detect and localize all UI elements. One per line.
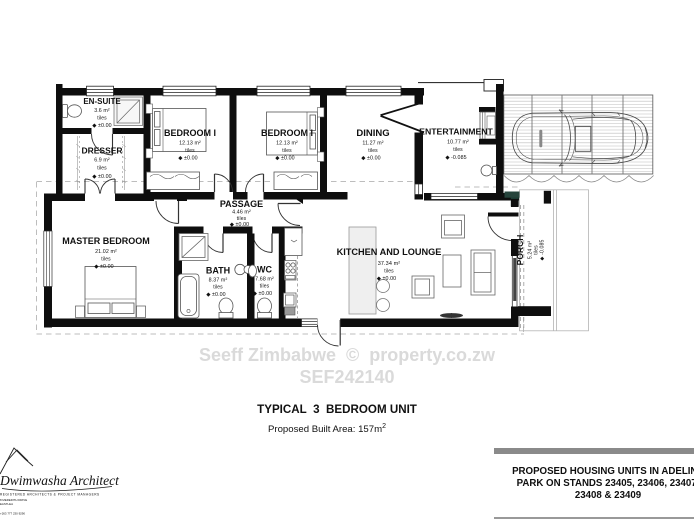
svg-text:BEDROOM I: BEDROOM I xyxy=(261,128,313,138)
svg-text:tiles: tiles xyxy=(97,116,107,122)
svg-text:◆ -0.085: ◆ -0.085 xyxy=(445,155,466,161)
svg-text:10.77 m²: 10.77 m² xyxy=(447,140,469,146)
svg-text:tiles: tiles xyxy=(260,284,270,290)
svg-text:12.13 m²: 12.13 m² xyxy=(179,141,201,147)
svg-text:EN-SUITE: EN-SUITE xyxy=(83,97,121,106)
svg-text:tiles: tiles xyxy=(453,147,463,153)
svg-text:◆ ±0.00: ◆ ±0.00 xyxy=(94,264,113,270)
svg-text:DINING: DINING xyxy=(356,128,389,139)
svg-text:tiles: tiles xyxy=(101,257,111,263)
svg-text:11.27 m²: 11.27 m² xyxy=(362,141,383,147)
svg-text:7.68 m²: 7.68 m² xyxy=(255,277,274,283)
svg-text:WC: WC xyxy=(257,265,272,275)
svg-text:◆ ±0.00: ◆ ±0.00 xyxy=(361,156,380,162)
svg-text:◆ ±0.00: ◆ ±0.00 xyxy=(178,156,197,162)
svg-text:tiles: tiles xyxy=(384,269,394,275)
svg-text:8.37 m²: 8.37 m² xyxy=(209,278,228,284)
svg-text:◆ ±0.00: ◆ ±0.00 xyxy=(230,222,249,228)
svg-text:ENTERTAINMENT: ENTERTAINMENT xyxy=(419,127,493,137)
svg-text:37.34 m²: 37.34 m² xyxy=(378,261,401,267)
svg-text:DRESSER: DRESSER xyxy=(81,146,122,156)
svg-text:tiles: tiles xyxy=(282,148,292,154)
svg-text:◆ ±0.00: ◆ ±0.00 xyxy=(377,276,396,282)
svg-text:◆ ±0.00: ◆ ±0.00 xyxy=(92,123,111,129)
svg-text:◆ ±0.00: ◆ ±0.00 xyxy=(206,292,225,298)
svg-text:6.9 m²: 6.9 m² xyxy=(94,158,110,164)
svg-text:3.6 m²: 3.6 m² xyxy=(94,108,110,114)
svg-text:+263 777 230 9290: +263 777 230 9290 xyxy=(0,512,25,516)
svg-text:BEDROOM I: BEDROOM I xyxy=(164,128,216,138)
svg-text:◆ ±0.00: ◆ ±0.00 xyxy=(275,156,294,162)
svg-text:21.02 m²: 21.02 m² xyxy=(95,249,117,255)
svg-text:PASSAGE: PASSAGE xyxy=(220,199,263,209)
svg-text:4.46 m²: 4.46 m² xyxy=(232,210,251,216)
svg-text:◆ ±0.00: ◆ ±0.00 xyxy=(253,291,272,297)
svg-text:Dwimwasha Architect: Dwimwasha Architect xyxy=(0,473,120,488)
svg-text:tiles: tiles xyxy=(185,148,195,154)
svg-text:PORCH: PORCH xyxy=(515,235,525,266)
svg-text:12.13 m²: 12.13 m² xyxy=(276,141,298,147)
svg-text:tiles: tiles xyxy=(213,285,223,291)
svg-text:BATH: BATH xyxy=(206,266,230,276)
svg-text:tiles: tiles xyxy=(97,166,107,172)
svg-text:◆ ±0.00: ◆ ±0.00 xyxy=(92,174,111,180)
svg-text:◆ -0.085: ◆ -0.085 xyxy=(540,240,546,261)
svg-text:REGISTERED ARCHITECTS & PROJEC: REGISTERED ARCHITECTS & PROJECT MANAGERS xyxy=(0,493,100,497)
svg-text:KITCHEN AND LOUNGE: KITCHEN AND LOUNGE xyxy=(337,247,442,257)
svg-text:EASTLEA: EASTLEA xyxy=(0,502,13,506)
svg-text:MASTER BEDROOM: MASTER BEDROOM xyxy=(62,236,150,246)
svg-text:tiles: tiles xyxy=(368,148,378,154)
